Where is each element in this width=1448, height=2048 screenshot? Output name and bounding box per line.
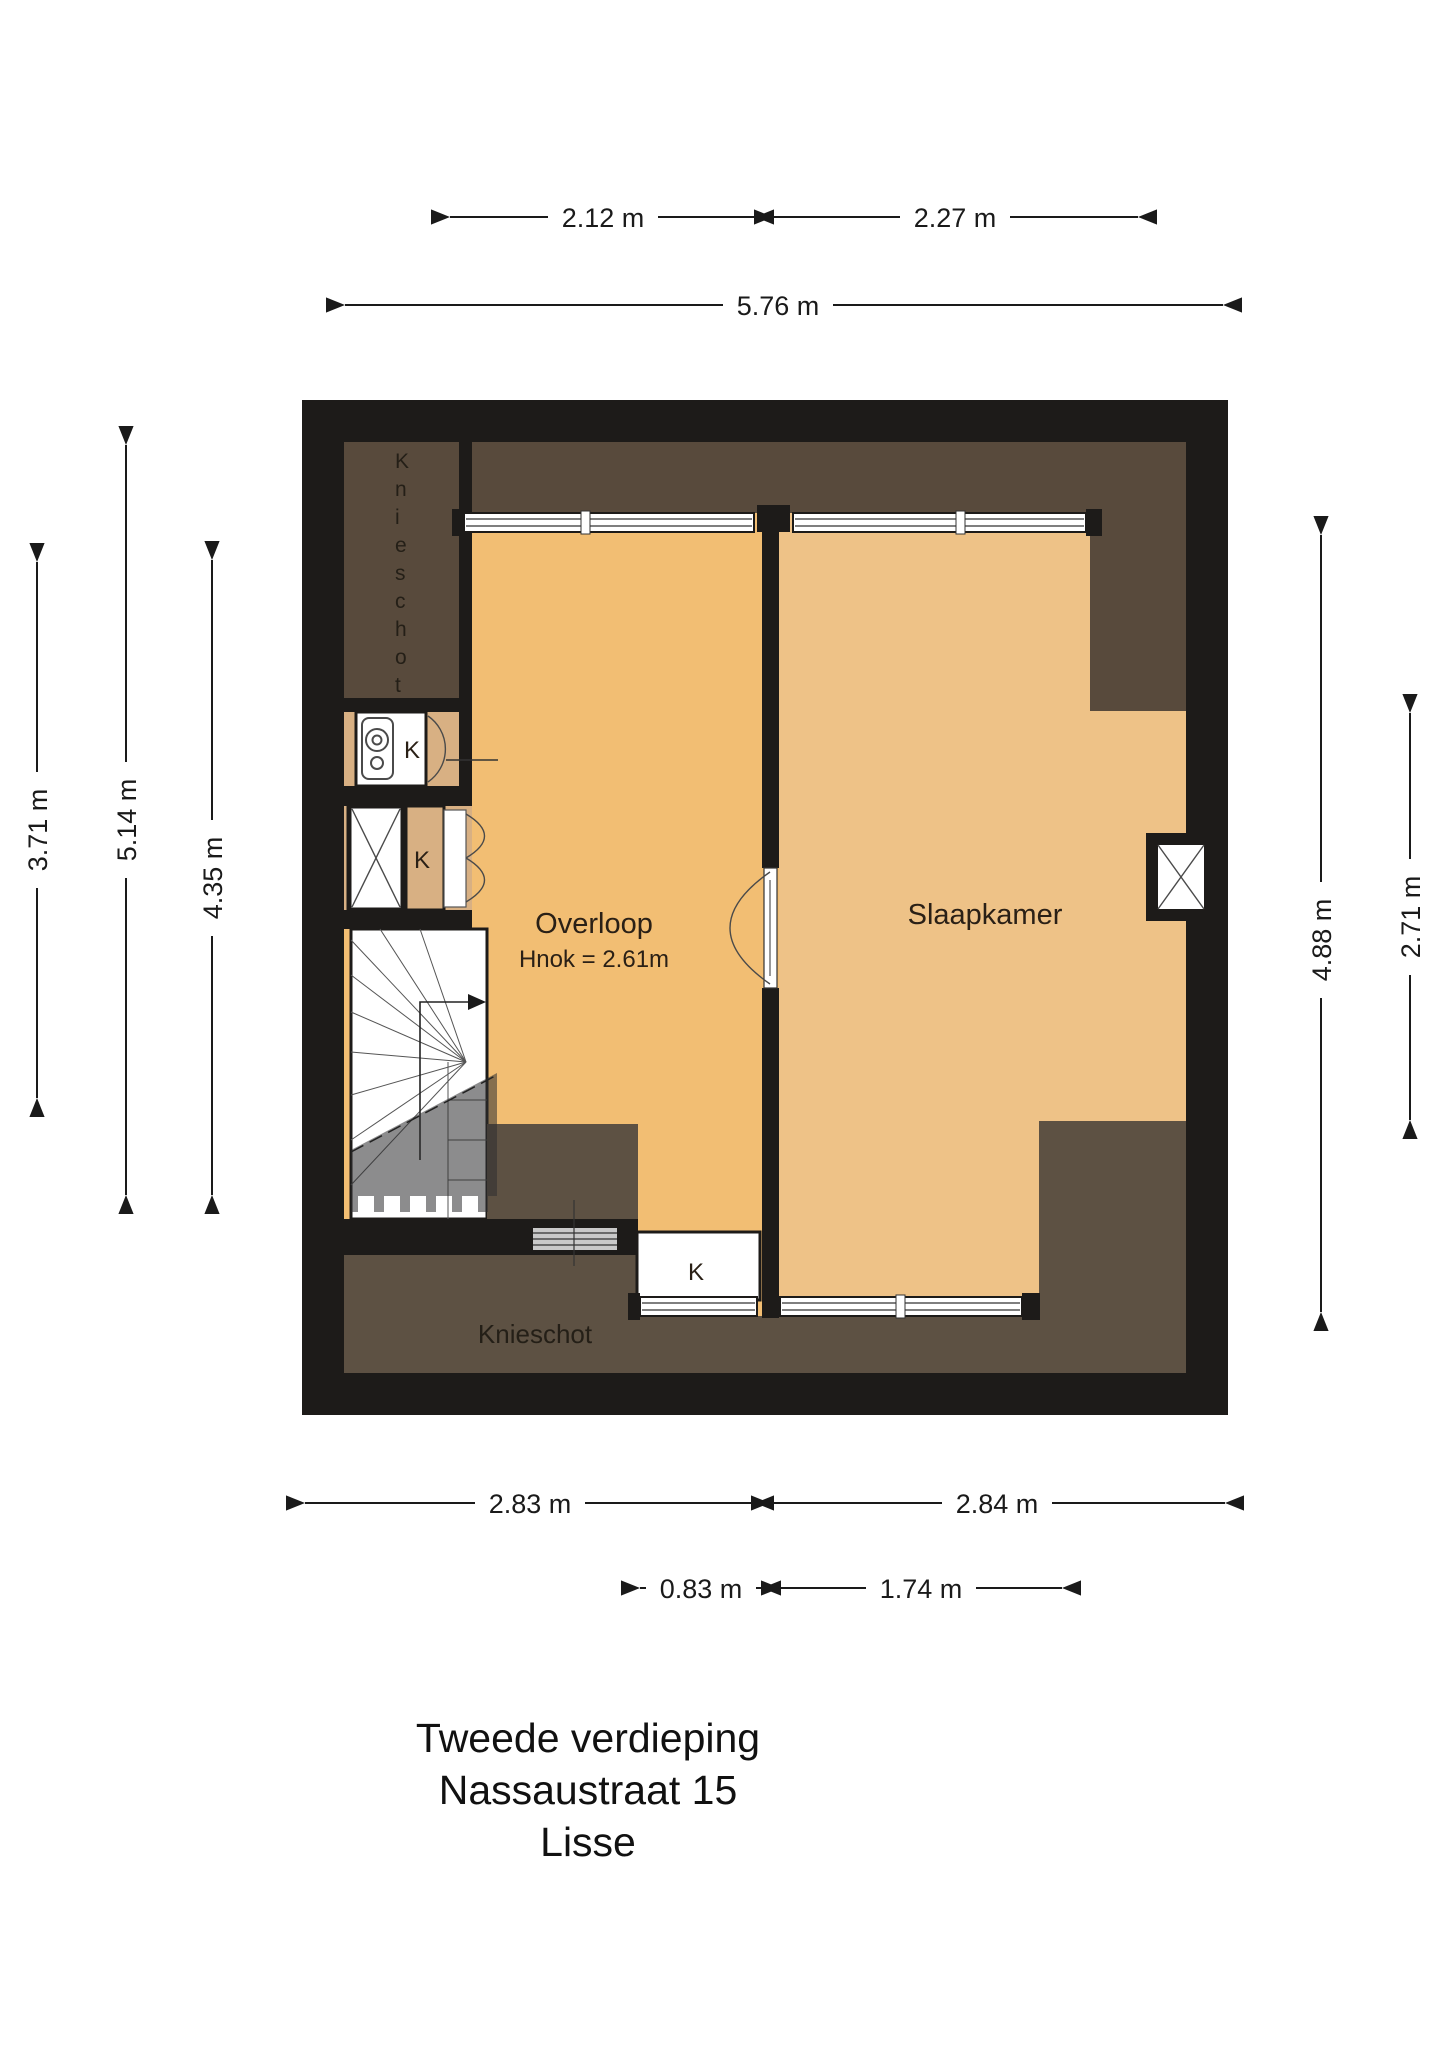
dim-left-5-14: 5.14 m: [110, 445, 142, 1195]
window-bottom-left: [628, 1293, 757, 1320]
svg-text:4.88 m: 4.88 m: [1307, 899, 1337, 982]
dividing-wall-lower: [762, 988, 779, 1318]
dim-left-4-35: 4.35 m: [196, 560, 228, 1195]
closet-bottom-label: K: [688, 1259, 704, 1286]
room-slaapkamer-label: Slaapkamer: [908, 899, 1063, 931]
floorplan-drawing: K K: [302, 400, 1228, 1415]
title-line-3: Lisse: [540, 1819, 636, 1865]
closet-left-label: K: [414, 847, 430, 874]
svg-text:2.27 m: 2.27 m: [914, 203, 997, 233]
wall-segment: [459, 698, 472, 806]
roof-space-top: [472, 442, 1186, 513]
svg-text:2.83 m: 2.83 m: [489, 1489, 572, 1519]
svg-text:2.84 m: 2.84 m: [956, 1489, 1039, 1519]
svg-text:2.12 m: 2.12 m: [562, 203, 645, 233]
roof-space-mid-left: [487, 1124, 638, 1219]
dim-top-5-76: 5.76 m: [345, 289, 1223, 321]
window-slaapkamer-top: [793, 509, 1102, 536]
shaft-right: [1146, 833, 1228, 921]
knieschot-bottom-label: Knieschot: [478, 1319, 593, 1349]
svg-text:3.71 m: 3.71 m: [23, 789, 53, 872]
dim-bottom-2-83: 2.83 m: [305, 1487, 755, 1519]
dim-bottom-1-74: 1.74 m: [780, 1572, 1062, 1604]
dim-right-2-71: 2.71 m: [1394, 713, 1426, 1120]
svg-text:5.76 m: 5.76 m: [737, 291, 820, 321]
svg-text:2.71 m: 2.71 m: [1396, 876, 1426, 959]
wall-segment: [344, 910, 472, 929]
window-overloop-top: [452, 509, 754, 536]
room-overloop-label: Overloop: [535, 908, 653, 940]
svg-text:4.35 m: 4.35 m: [198, 837, 228, 920]
window-bottom-right: [780, 1293, 1040, 1320]
dividing-wall-upper: [762, 513, 779, 868]
vent-louvre: [533, 1228, 617, 1250]
dim-top-2-12: 2.12 m: [450, 201, 755, 233]
title-line-1: Tweede verdieping: [416, 1715, 760, 1761]
wall-segment: [344, 786, 472, 806]
dim-bottom-2-84: 2.84 m: [770, 1487, 1225, 1519]
closet-boiler-label: K: [404, 737, 420, 764]
wall-segment: [344, 698, 472, 712]
dim-bottom-0-83: 0.83 m: [640, 1572, 762, 1604]
plan-title: Tweede verdieping Nassaustraat 15 Lisse: [416, 1715, 760, 1865]
wall-segment: [459, 442, 472, 712]
svg-text:5.14 m: 5.14 m: [112, 779, 142, 862]
closet-door-strip: [444, 810, 466, 907]
dim-top-2-27: 2.27 m: [773, 201, 1138, 233]
room-overloop-note: Hnok = 2.61m: [519, 946, 669, 973]
floorplan-page: K K: [0, 0, 1448, 2048]
title-line-2: Nassaustraat 15: [439, 1767, 738, 1813]
roof-space-right: [1090, 442, 1186, 711]
svg-text:0.83 m: 0.83 m: [660, 1574, 743, 1604]
roof-space-bottom-right: [1039, 1121, 1186, 1373]
dim-right-4-88: 4.88 m: [1305, 535, 1337, 1312]
svg-text:1.74 m: 1.74 m: [880, 1574, 963, 1604]
floorplan-svg: K K: [0, 0, 1448, 2048]
dim-left-3-71: 3.71 m: [21, 562, 53, 1098]
